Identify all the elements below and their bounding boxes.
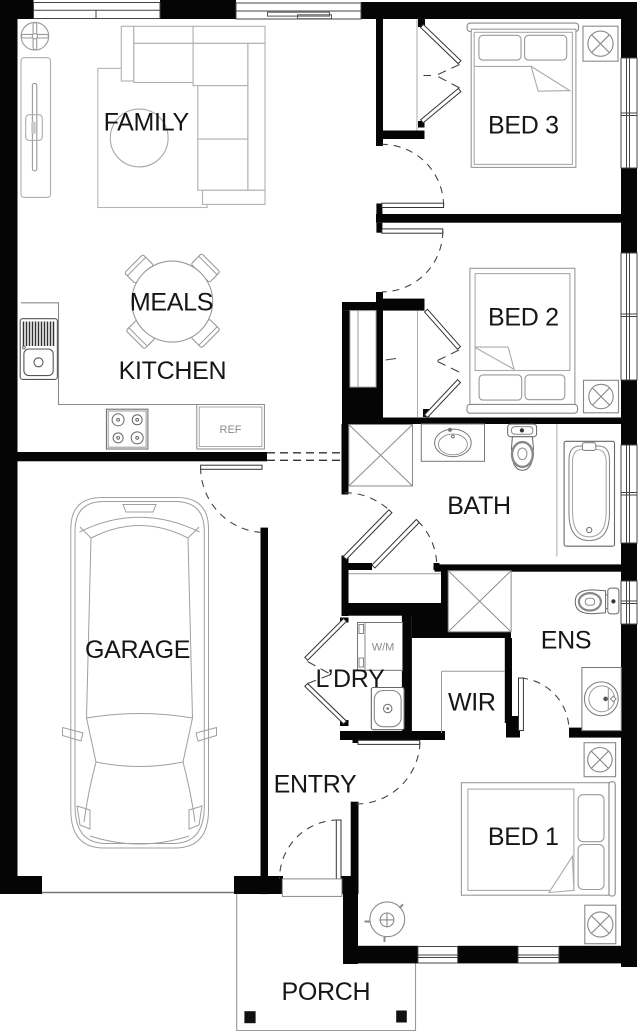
svg-text:W/M: W/M bbox=[372, 642, 395, 654]
svg-text:FAMILY: FAMILY bbox=[104, 109, 190, 137]
svg-text:PORCH: PORCH bbox=[282, 978, 371, 1006]
svg-text:ENS: ENS bbox=[541, 627, 592, 655]
svg-text:BED 3: BED 3 bbox=[488, 112, 559, 140]
svg-text:BATH: BATH bbox=[447, 492, 511, 520]
svg-text:ENTRY: ENTRY bbox=[274, 771, 357, 799]
svg-text:KITCHEN: KITCHEN bbox=[119, 357, 227, 385]
svg-text:L’DRY: L’DRY bbox=[316, 665, 386, 693]
svg-text:MEALS: MEALS bbox=[130, 289, 213, 317]
svg-text:REF: REF bbox=[220, 424, 242, 436]
svg-text:GARAGE: GARAGE bbox=[85, 636, 190, 664]
svg-text:BED 2: BED 2 bbox=[488, 304, 559, 332]
svg-text:BED 1: BED 1 bbox=[488, 823, 559, 851]
svg-text:WIR: WIR bbox=[448, 689, 496, 717]
